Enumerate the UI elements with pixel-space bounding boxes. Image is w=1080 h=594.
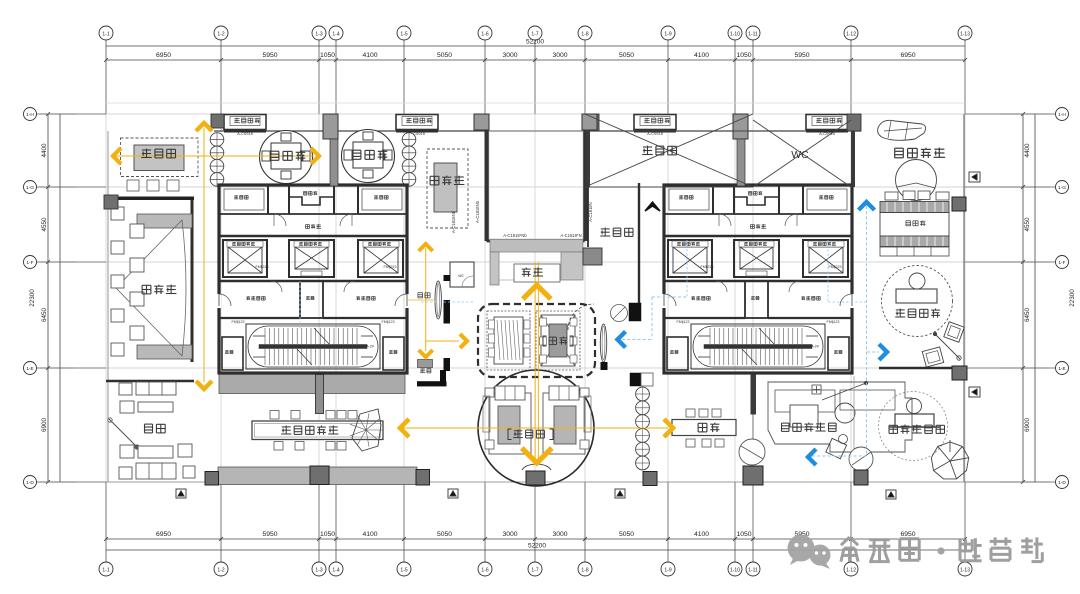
svg-text:1-7: 1-7: [531, 568, 538, 574]
svg-text:1-10: 1-10: [730, 32, 740, 38]
svg-text:6950: 6950: [156, 52, 171, 59]
svg-text:A-C1818N: A-C1818N: [588, 202, 593, 222]
svg-text:3000: 3000: [502, 52, 517, 59]
svg-text:FMfj223: FMfj223: [701, 265, 714, 269]
svg-text:1-13: 1-13: [960, 568, 970, 574]
svg-text:1-F: 1-F: [26, 260, 33, 266]
svg-text:1-E: 1-E: [1058, 366, 1065, 372]
svg-text:1-H: 1-H: [26, 112, 34, 118]
svg-text:1-4: 1-4: [332, 568, 339, 574]
svg-text:4550: 4550: [41, 217, 48, 232]
svg-text:1-12: 1-12: [846, 32, 856, 38]
svg-text:1-11: 1-11: [748, 32, 758, 38]
svg-text:5950: 5950: [262, 531, 277, 538]
svg-text:22300: 22300: [29, 289, 36, 307]
svg-text:1-5: 1-5: [400, 32, 407, 38]
svg-text:5950: 5950: [794, 52, 809, 59]
svg-text:1-3: 1-3: [315, 32, 322, 38]
svg-text:FMfj223: FMfj223: [829, 265, 842, 269]
svg-text:1-G: 1-G: [1058, 185, 1066, 191]
svg-text:1-9: 1-9: [664, 568, 671, 574]
svg-text:6900: 6900: [1024, 418, 1031, 433]
svg-text:4100: 4100: [362, 52, 377, 59]
svg-text:1-13: 1-13: [960, 32, 970, 38]
svg-text:1-4: 1-4: [332, 32, 339, 38]
svg-text:22300: 22300: [1069, 289, 1076, 307]
svg-text:1-D: 1-D: [1058, 480, 1066, 486]
svg-text:6950: 6950: [900, 531, 915, 538]
svg-text:3000: 3000: [552, 531, 567, 538]
svg-text:FMfj223: FMfj223: [384, 265, 397, 269]
svg-text:5050: 5050: [619, 531, 634, 538]
svg-text:1050: 1050: [736, 531, 751, 538]
svg-text:4100: 4100: [362, 531, 377, 538]
svg-text:1-12: 1-12: [846, 568, 856, 574]
svg-text:FMfj123: FMfj123: [232, 320, 245, 324]
svg-text:5050: 5050: [437, 52, 452, 59]
svg-text:A-C1818Nb: A-C1818Nb: [475, 200, 480, 223]
svg-text:A-C1818Nb: A-C1818Nb: [451, 210, 456, 233]
svg-text:4100: 4100: [694, 52, 709, 59]
svg-text:1-1: 1-1: [102, 32, 109, 38]
svg-text:A-C1818*Nb: A-C1818*Nb: [503, 233, 527, 238]
svg-text:6450: 6450: [41, 308, 48, 323]
svg-text:FMfj123: FMfj123: [677, 320, 690, 324]
svg-text:1-3: 1-3: [315, 568, 322, 574]
svg-text:1-1: 1-1: [102, 568, 109, 574]
svg-text:4100: 4100: [694, 531, 709, 538]
svg-text:1-8: 1-8: [581, 32, 588, 38]
svg-text:5950: 5950: [262, 52, 277, 59]
svg-text:A-2#: A-2#: [366, 345, 374, 349]
svg-text:1050: 1050: [320, 531, 335, 538]
svg-text:1-2: 1-2: [217, 568, 224, 574]
svg-text:4400: 4400: [1024, 143, 1031, 158]
svg-text:4400: 4400: [41, 143, 48, 158]
svg-text:1-H: 1-H: [1058, 112, 1066, 118]
svg-text:4550: 4550: [1024, 217, 1031, 232]
svg-text:1-F: 1-F: [1058, 260, 1065, 266]
svg-text:1-D: 1-D: [26, 480, 34, 486]
svg-text:FMfj223: FMfj223: [256, 265, 269, 269]
svg-text:1-6: 1-6: [481, 32, 488, 38]
svg-text:1-9: 1-9: [664, 32, 671, 38]
svg-text:1-G: 1-G: [26, 185, 34, 191]
svg-text:1-8: 1-8: [581, 568, 588, 574]
svg-text:52200: 52200: [528, 543, 546, 550]
svg-text:WC: WC: [791, 149, 809, 161]
svg-text:A-2#: A-2#: [811, 345, 819, 349]
svg-text:3000: 3000: [502, 531, 517, 538]
svg-text:6900: 6900: [41, 418, 48, 433]
svg-text:1-6: 1-6: [481, 568, 488, 574]
svg-text:wc: wc: [458, 273, 464, 278]
svg-text:1-7: 1-7: [531, 32, 538, 38]
svg-text:5050: 5050: [437, 531, 452, 538]
svg-text:FMfj123: FMfj123: [827, 320, 840, 324]
svg-text:1-11: 1-11: [748, 568, 758, 574]
svg-text:1-5: 1-5: [400, 568, 407, 574]
svg-text:A-C1818*N: A-C1818*N: [560, 233, 581, 238]
svg-text:6950: 6950: [900, 52, 915, 59]
svg-text:5050: 5050: [619, 52, 634, 59]
svg-text:FMfj123: FMfj123: [382, 320, 395, 324]
svg-text:6950: 6950: [156, 531, 171, 538]
svg-text:3000: 3000: [552, 52, 567, 59]
svg-text:A-C0918: A-C0918: [647, 131, 664, 136]
svg-text:1-2: 1-2: [217, 32, 224, 38]
svg-text:1050: 1050: [320, 52, 335, 59]
svg-text:A-C0918: A-C0918: [237, 131, 254, 136]
svg-text:1050: 1050: [736, 52, 751, 59]
svg-text:1-10: 1-10: [730, 568, 740, 574]
svg-text:6450: 6450: [1024, 308, 1031, 323]
svg-text:1-E: 1-E: [26, 366, 33, 372]
